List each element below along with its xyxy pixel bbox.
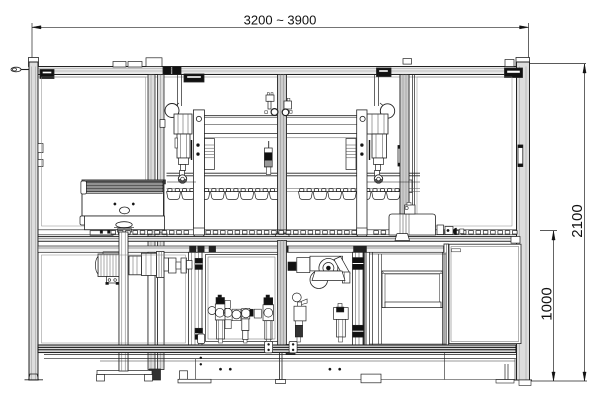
svg-text:2100: 2100	[569, 204, 586, 237]
svg-text:1000: 1000	[539, 287, 556, 320]
svg-text:3200 ~ 3900: 3200 ~ 3900	[244, 13, 317, 28]
